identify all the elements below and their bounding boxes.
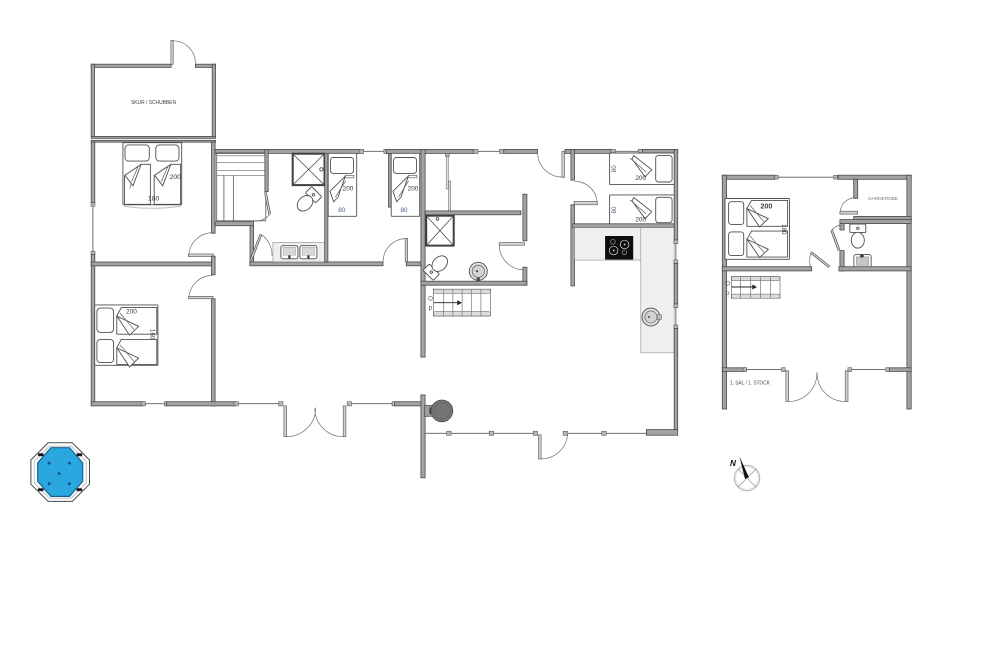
svg-text:200: 200 bbox=[635, 217, 646, 224]
svg-text:200: 200 bbox=[408, 185, 419, 192]
svg-text:O: O bbox=[428, 295, 433, 302]
svg-text:200: 200 bbox=[635, 175, 646, 182]
svg-text:160: 160 bbox=[149, 329, 156, 340]
svg-text:SKUR / SCHUBBEN: SKUR / SCHUBBEN bbox=[131, 100, 176, 106]
svg-text:p: p bbox=[429, 305, 433, 312]
svg-text:200: 200 bbox=[170, 174, 182, 181]
svg-text:O: O bbox=[725, 281, 730, 288]
svg-text:180: 180 bbox=[148, 195, 160, 202]
svg-text:200: 200 bbox=[760, 202, 772, 211]
svg-text:80: 80 bbox=[611, 206, 618, 214]
svg-text:p: p bbox=[726, 290, 730, 297]
svg-text:80: 80 bbox=[400, 207, 408, 214]
svg-text:80: 80 bbox=[611, 165, 618, 173]
svg-text:80: 80 bbox=[338, 207, 346, 214]
svg-text:200: 200 bbox=[126, 309, 137, 316]
svg-text:1. SAL / 1. STOCK: 1. SAL / 1. STOCK bbox=[730, 380, 770, 386]
svg-text:GARDEROBE: GARDEROBE bbox=[868, 196, 898, 201]
svg-text:200: 200 bbox=[343, 185, 354, 192]
svg-text:180: 180 bbox=[780, 224, 787, 235]
